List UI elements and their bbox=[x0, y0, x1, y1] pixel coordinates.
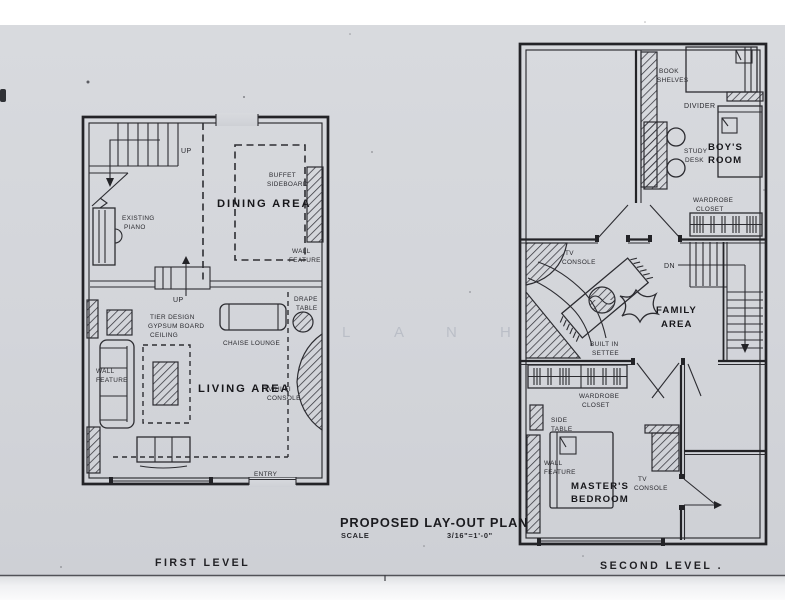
label-wall-feature-left: WALL bbox=[96, 368, 115, 375]
boys-room-label: ROOM bbox=[708, 155, 742, 166]
wall-feature-panel bbox=[307, 167, 323, 242]
label-dn: DN bbox=[664, 263, 675, 270]
label-tier-ceiling: TIER DESIGN bbox=[150, 314, 195, 321]
label-up-steps: UP bbox=[173, 297, 184, 304]
label-tv-hifi: CONSOLE bbox=[267, 395, 301, 402]
family-area-label: AREA bbox=[661, 319, 693, 330]
drape-table bbox=[293, 312, 313, 332]
side-table bbox=[530, 405, 543, 430]
master-bedroom-label: MASTER'S bbox=[571, 481, 629, 492]
watermark-letter: H bbox=[500, 324, 512, 341]
label-buffet: BUFFET bbox=[269, 172, 296, 179]
wall-feature-panel bbox=[527, 435, 540, 533]
label-existing-piano: PIANO bbox=[124, 224, 146, 231]
dining-area-label: DINING AREA bbox=[217, 198, 311, 210]
label-side-table: SIDE bbox=[551, 417, 567, 424]
label-entry: ENTRY bbox=[254, 471, 278, 478]
master-tv-console bbox=[652, 433, 679, 471]
label-wardrobe-master: WARDROBE bbox=[579, 393, 619, 400]
family-area-label: FAMILY bbox=[656, 305, 697, 316]
wall-feature-panel bbox=[107, 310, 132, 335]
label-book-shelves: BOOK bbox=[659, 68, 679, 75]
label-book-shelves: SHELVES bbox=[657, 77, 688, 84]
table-edge-strip bbox=[0, 576, 785, 600]
label-tier-ceiling: GYPSUM BOARD bbox=[148, 323, 204, 330]
label-divider: DIVIDER bbox=[684, 103, 716, 110]
label-drape-table: TABLE bbox=[296, 305, 318, 312]
scale-value: 3/16"=1'-0" bbox=[447, 531, 493, 540]
label-tv-console-family: TV bbox=[565, 250, 574, 257]
label-wall-feature-left: FEATURE bbox=[96, 377, 128, 384]
watermark-letter: L bbox=[342, 324, 351, 341]
floor-plan-drawing: L A N H UP bbox=[0, 0, 785, 600]
label-existing-piano: EXISTING bbox=[122, 215, 155, 222]
master-bedroom-label: BEDROOM bbox=[571, 494, 629, 505]
wall-feature-panel bbox=[87, 300, 98, 338]
boys-room-label: BOY'S bbox=[708, 142, 743, 153]
label-built-in-settee: SETTEE bbox=[592, 350, 619, 357]
top-wall-opening bbox=[216, 113, 258, 126]
sheet-title: PROPOSED LAY-OUT PLAN bbox=[340, 515, 528, 530]
label-tv-console-master: CONSOLE bbox=[634, 485, 668, 492]
label-drape-table: DRAPE bbox=[294, 296, 318, 303]
photographed-floor-plan-sheet: L A N H UP bbox=[0, 0, 785, 600]
watermark-letter: A bbox=[394, 324, 405, 341]
family-coffee-table bbox=[589, 287, 615, 313]
scale-label: SCALE bbox=[341, 531, 370, 540]
label-buffet: SIDEBOARD bbox=[267, 181, 308, 188]
coffee-table bbox=[153, 362, 178, 405]
label-tv-hifi: TV/HI-FI bbox=[264, 386, 291, 393]
first-level-caption: FIRST LEVEL bbox=[155, 557, 250, 569]
study-desk bbox=[644, 122, 667, 189]
label-wardrobe-top: WARDROBE bbox=[693, 197, 733, 204]
label-wall-feature-right: WALL bbox=[292, 248, 311, 255]
label-tier-ceiling: CEILING bbox=[150, 332, 178, 339]
label-wardrobe-master: CLOSET bbox=[582, 402, 610, 409]
label-wardrobe-top: CLOSET bbox=[696, 206, 724, 213]
label-study-desk: STUDY bbox=[684, 148, 708, 155]
label-tv-console-master: TV bbox=[638, 476, 647, 483]
label-built-in-settee: BUILT IN bbox=[590, 341, 619, 348]
label-up-stairs: UP bbox=[181, 148, 192, 155]
label-chaise-lounge: CHAISE LOUNGE bbox=[223, 340, 280, 347]
paper-sheet bbox=[0, 25, 785, 576]
label-wall-feature-right: FEATURE bbox=[289, 257, 321, 264]
wall-feature-panel bbox=[87, 427, 100, 473]
divider bbox=[727, 92, 763, 101]
label-study-desk: DESK bbox=[685, 157, 704, 164]
label-wall-feature-master: FEATURE bbox=[544, 469, 576, 476]
label-tv-console-family: CONSOLE bbox=[562, 259, 596, 266]
watermark-letter: N bbox=[446, 324, 458, 341]
label-wall-feature-master: WALL bbox=[544, 460, 563, 467]
master-tv-console bbox=[645, 425, 679, 433]
second-level-caption: SECOND LEVEL . bbox=[600, 560, 723, 572]
